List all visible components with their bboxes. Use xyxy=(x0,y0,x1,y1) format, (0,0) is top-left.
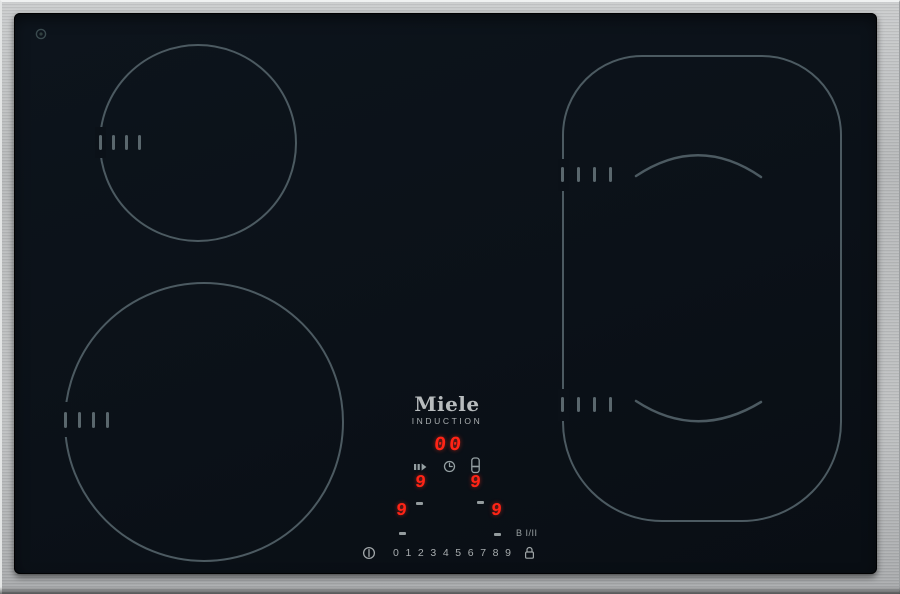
minus-key[interactable] xyxy=(494,533,501,536)
booster-label: B I/II xyxy=(516,529,538,538)
clock-icon[interactable] xyxy=(443,460,456,473)
cooking-zone-right-flex xyxy=(562,55,842,522)
brand-logo: Miele xyxy=(397,394,497,414)
power-level-tick xyxy=(609,167,612,182)
zone-level-display-lower-right: 9 xyxy=(490,502,502,520)
brand-logo-block: Miele INDUCTION xyxy=(397,394,497,426)
power-level-tick xyxy=(577,397,580,412)
zone-level-display-upper-right: 9 xyxy=(469,474,481,492)
power-slider-digits[interactable]: 0 1 2 3 4 5 6 7 8 9 xyxy=(393,548,512,559)
minus-key[interactable] xyxy=(416,502,423,505)
power-icon[interactable] xyxy=(362,546,376,560)
cooking-zone-rear-left xyxy=(99,44,297,242)
power-level-tick xyxy=(92,412,95,428)
brand-subtitle: INDUCTION xyxy=(397,417,497,426)
zone-level-display-upper-left: 9 xyxy=(414,474,426,492)
power-level-tick xyxy=(138,135,141,150)
power-level-tick xyxy=(125,135,128,150)
minute-minder-icon[interactable] xyxy=(470,457,481,474)
power-level-tick xyxy=(64,412,67,428)
frame-bottom-shadow xyxy=(0,587,900,594)
power-level-tick xyxy=(593,397,596,412)
power-level-tick xyxy=(78,412,81,428)
stop-and-go-icon[interactable] xyxy=(413,462,428,472)
induction-cooktop: Miele INDUCTION 00 9 9 9 9 B I/II xyxy=(0,0,900,594)
glass-emblem-icon xyxy=(35,28,47,40)
power-level-tick xyxy=(561,397,564,412)
power-level-tick xyxy=(593,167,596,182)
minus-key[interactable] xyxy=(477,501,484,504)
lock-icon[interactable] xyxy=(523,545,536,560)
zone-level-display-lower-left: 9 xyxy=(395,502,407,520)
minus-key[interactable] xyxy=(399,532,406,535)
power-level-tick xyxy=(112,135,115,150)
power-level-tick xyxy=(99,135,102,150)
timer-display: 00 xyxy=(433,436,465,456)
power-level-tick xyxy=(561,167,564,182)
power-level-tick xyxy=(577,167,580,182)
power-level-tick xyxy=(609,397,612,412)
power-level-tick xyxy=(106,412,109,428)
